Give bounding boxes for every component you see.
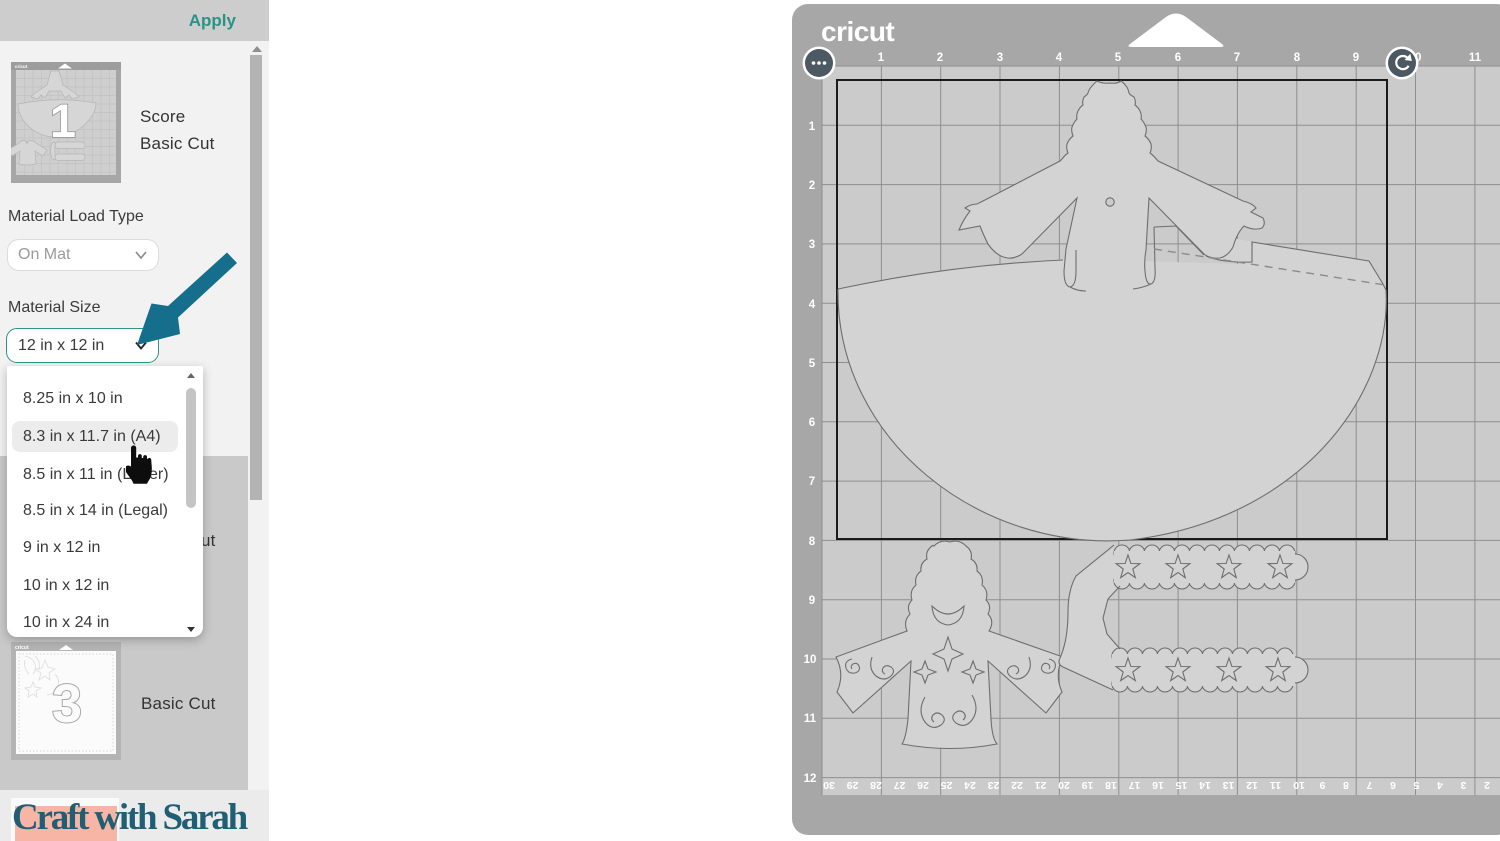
- svg-text:21: 21: [1035, 779, 1047, 791]
- svg-text:2: 2: [809, 180, 815, 192]
- svg-text:7: 7: [1234, 52, 1240, 64]
- svg-text:20: 20: [1058, 779, 1070, 791]
- svg-text:9: 9: [1319, 779, 1325, 791]
- svg-text:cricut: cricut: [15, 64, 28, 69]
- svg-text:30: 30: [823, 779, 835, 791]
- svg-text:5: 5: [1115, 52, 1122, 64]
- svg-text:29: 29: [847, 779, 859, 791]
- svg-text:18: 18: [1105, 779, 1117, 791]
- svg-text:11: 11: [804, 713, 817, 725]
- svg-text:22: 22: [1011, 779, 1023, 791]
- svg-text:23: 23: [988, 779, 1000, 791]
- svg-text:17: 17: [1129, 779, 1141, 791]
- svg-text:9: 9: [1353, 52, 1359, 64]
- svg-text:16: 16: [1152, 779, 1164, 791]
- svg-text:26: 26: [917, 779, 929, 791]
- svg-text:28: 28: [870, 779, 882, 791]
- svg-text:27: 27: [894, 779, 906, 791]
- svg-text:24: 24: [964, 779, 976, 791]
- svg-text:4: 4: [1056, 52, 1063, 64]
- svg-text:9: 9: [809, 595, 815, 607]
- svg-text:cricut: cricut: [821, 16, 894, 47]
- svg-text:19: 19: [1082, 779, 1094, 791]
- svg-text:1: 1: [50, 94, 76, 147]
- svg-text:4: 4: [809, 299, 816, 311]
- svg-text:25: 25: [941, 779, 953, 791]
- svg-text:3: 3: [809, 239, 815, 251]
- svg-text:3: 3: [52, 674, 82, 734]
- svg-text:8: 8: [809, 536, 816, 548]
- svg-text:cricut: cricut: [15, 645, 29, 651]
- svg-text:2: 2: [1484, 779, 1490, 791]
- svg-text:6: 6: [1390, 779, 1396, 791]
- svg-text:14: 14: [1199, 779, 1211, 791]
- svg-text:4: 4: [1437, 779, 1443, 791]
- svg-text:6: 6: [1175, 52, 1181, 64]
- svg-text:5: 5: [809, 358, 816, 370]
- svg-text:10: 10: [1293, 779, 1305, 791]
- svg-text:7: 7: [809, 476, 815, 488]
- svg-text:15: 15: [1176, 779, 1188, 791]
- svg-text:2: 2: [937, 52, 943, 64]
- svg-text:1: 1: [878, 52, 885, 64]
- svg-text:13: 13: [1223, 779, 1235, 791]
- svg-text:8: 8: [1294, 52, 1301, 64]
- svg-text:8: 8: [1343, 779, 1349, 791]
- svg-text:11: 11: [1469, 52, 1482, 64]
- svg-text:3: 3: [1460, 779, 1466, 791]
- svg-text:12: 12: [1246, 779, 1258, 791]
- svg-text:11: 11: [1270, 779, 1281, 791]
- svg-text:7: 7: [1366, 779, 1372, 791]
- svg-text:3: 3: [997, 52, 1003, 64]
- svg-text:12: 12: [804, 773, 817, 785]
- svg-text:5: 5: [1413, 779, 1419, 791]
- svg-text:10: 10: [804, 654, 817, 666]
- svg-text:6: 6: [809, 417, 815, 429]
- svg-text:1: 1: [809, 121, 816, 133]
